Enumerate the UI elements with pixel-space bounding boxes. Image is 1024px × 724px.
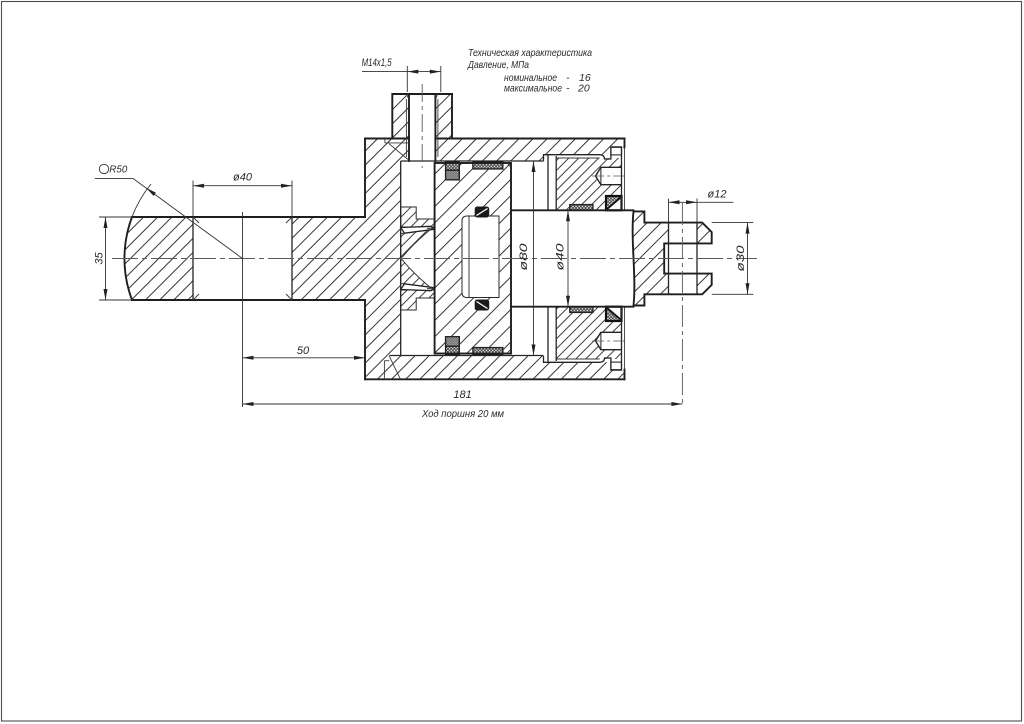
svg-text:181: 181: [453, 389, 471, 401]
svg-text:ø40: ø40: [555, 242, 567, 270]
svg-text:Ход поршня 20 мм: Ход поршня 20 мм: [421, 408, 504, 420]
svg-text:R50: R50: [109, 164, 127, 176]
svg-text:ø80: ø80: [518, 242, 530, 270]
svg-text:ø12: ø12: [708, 189, 727, 201]
svg-text:Давление, МПа: Давление, МПа: [467, 59, 529, 71]
svg-text:максимальное: максимальное: [504, 83, 562, 95]
svg-text:20: 20: [577, 83, 590, 95]
svg-text:50: 50: [297, 345, 310, 357]
svg-text:ø40: ø40: [233, 172, 253, 184]
svg-text:Техническая характеристика: Техническая характеристика: [468, 47, 592, 59]
svg-text:35: 35: [94, 252, 106, 265]
svg-text:-: -: [566, 83, 570, 95]
svg-text:M14x1,5: M14x1,5: [362, 57, 393, 69]
svg-text:ø30: ø30: [735, 244, 747, 271]
